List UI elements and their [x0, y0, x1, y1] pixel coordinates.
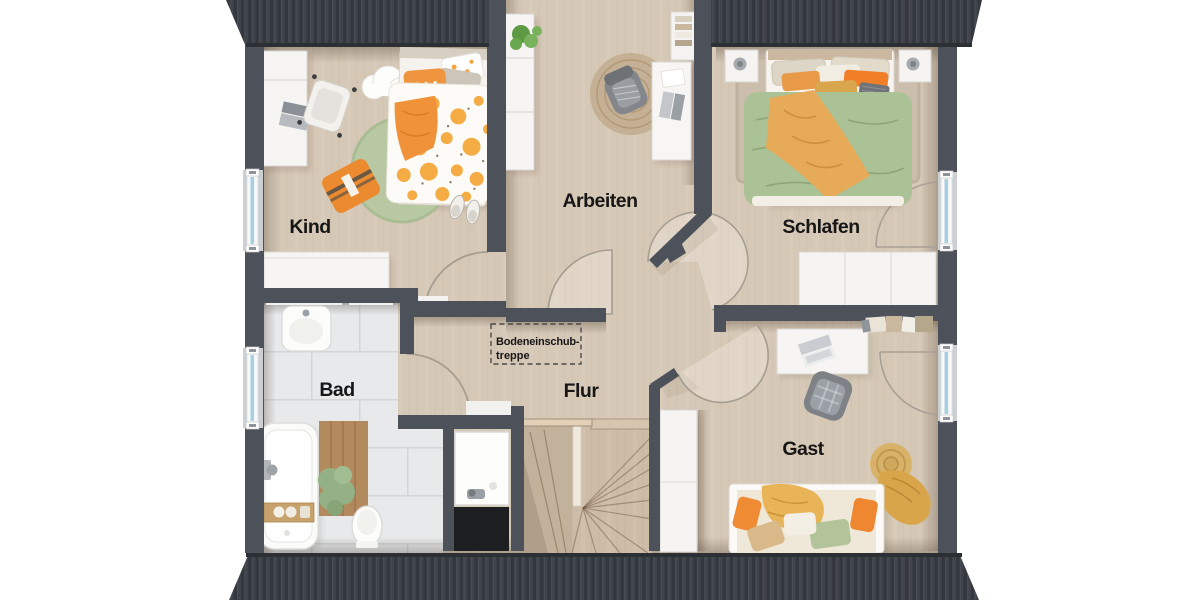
- svg-text:Schlafen: Schlafen: [782, 216, 859, 238]
- svg-text:Arbeiten: Arbeiten: [562, 190, 637, 212]
- svg-text:Bad: Bad: [319, 379, 354, 401]
- svg-text:Flur: Flur: [564, 380, 600, 402]
- svg-text:Bodeneinschub-: Bodeneinschub-: [496, 336, 580, 348]
- svg-text:Gast: Gast: [782, 438, 824, 460]
- svg-text:treppe: treppe: [496, 350, 530, 362]
- svg-text:Kind: Kind: [289, 216, 330, 238]
